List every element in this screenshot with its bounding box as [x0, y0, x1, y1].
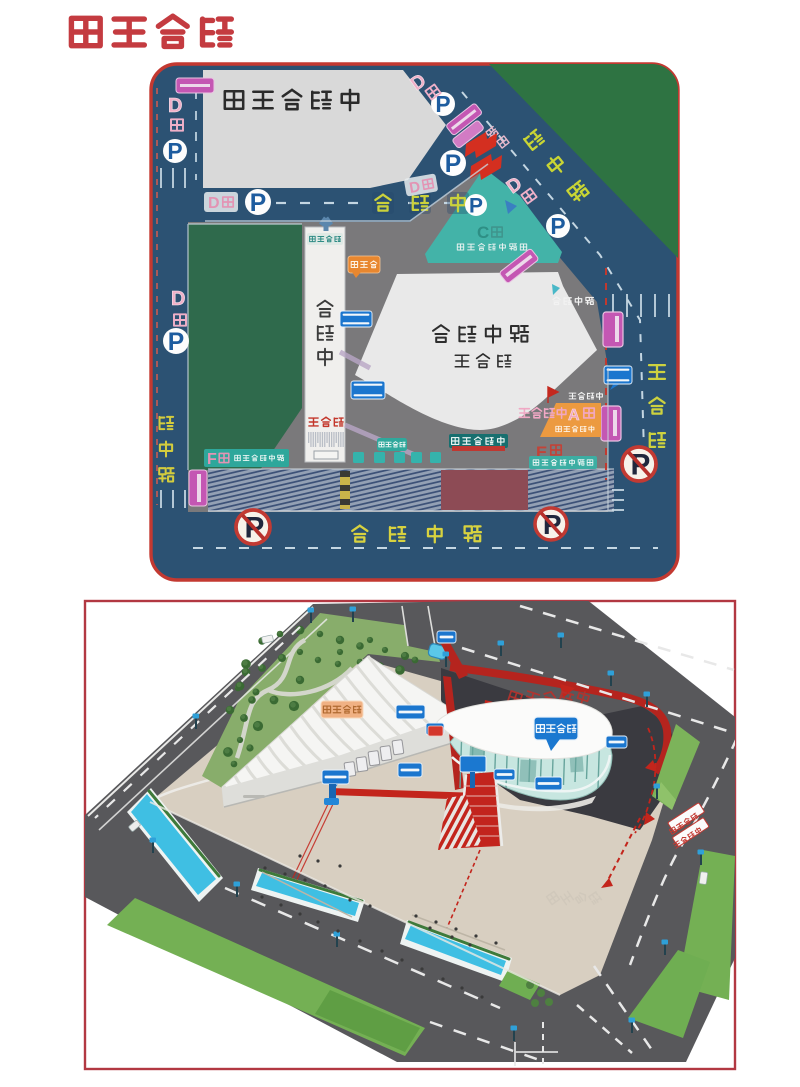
svg-text:P: P: [550, 213, 565, 239]
svg-text:D: D: [208, 195, 220, 212]
svg-text:P: P: [168, 329, 184, 356]
svg-text:P: P: [167, 138, 182, 164]
svg-text:D: D: [168, 95, 182, 117]
svg-text:P: P: [445, 151, 461, 178]
svg-text:C: C: [477, 223, 489, 242]
svg-text:D: D: [171, 288, 185, 310]
svg-text:A: A: [568, 407, 580, 424]
svg-text:P: P: [250, 190, 266, 217]
svg-text:P: P: [469, 194, 483, 217]
svg-text:F: F: [207, 451, 217, 468]
